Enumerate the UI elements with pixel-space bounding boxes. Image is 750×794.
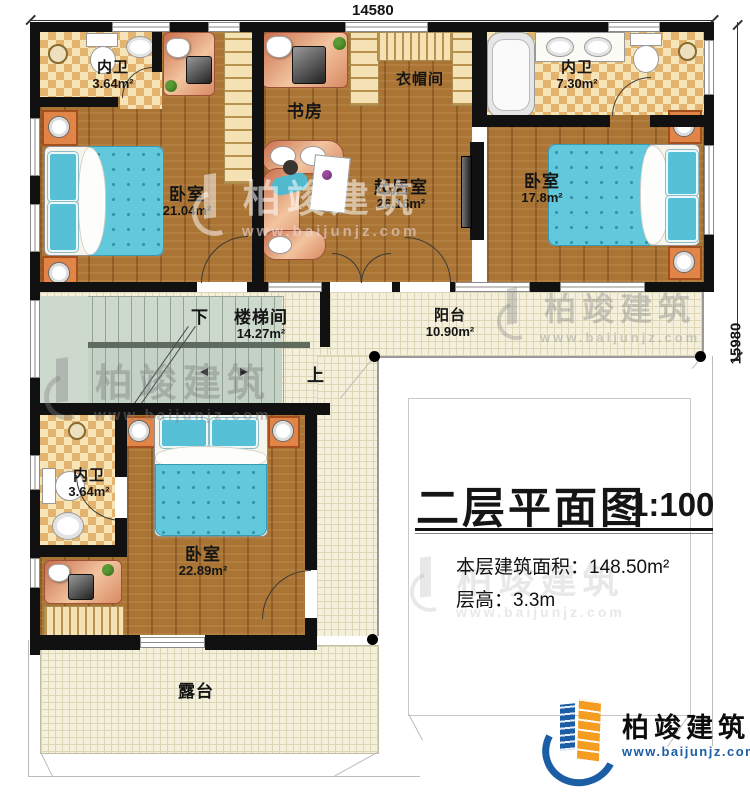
room-name: 楼梯间 [218, 308, 304, 327]
room-label-bath-top-right: 内卫 7.30m² [542, 60, 612, 91]
wall-upper-bottom [530, 282, 560, 292]
column-dot [369, 351, 380, 362]
cloakroom-rack [377, 32, 455, 61]
wall-bedroom3-bottom [30, 635, 140, 650]
room-name: 卧室 [500, 172, 584, 191]
wall-bath3-bottom [30, 545, 127, 557]
computer [292, 46, 326, 84]
window [268, 282, 322, 292]
table-lamp [128, 420, 150, 442]
desk-lamp [48, 564, 70, 582]
shower-head [48, 44, 68, 64]
wall-upper-bottom [392, 282, 400, 292]
room-area: 22.89m² [160, 564, 246, 579]
table-lamp [48, 116, 70, 138]
wall-bedroom3-bottom [205, 635, 317, 650]
bed-sheet-fold [78, 147, 106, 255]
toilet-tank [86, 33, 118, 47]
pillow [160, 418, 208, 448]
shower-head [68, 422, 86, 440]
walkway-floor [317, 356, 379, 636]
window [30, 204, 40, 252]
sink [584, 37, 612, 57]
room-area: 17.8m² [500, 191, 584, 206]
window [112, 22, 170, 32]
terrace-band-diagonal [334, 752, 377, 777]
cloakroom-closet-left [350, 32, 379, 106]
sink [126, 36, 154, 58]
pillow [666, 196, 698, 242]
room-label-stairwell: 楼梯间 14.27m² [218, 308, 304, 342]
terrace-band-diagonal [40, 752, 53, 777]
computer [68, 574, 94, 600]
magazine [309, 154, 351, 213]
logo-building-blue [560, 703, 575, 751]
wall-bedroom1-living [252, 22, 264, 282]
title-rule-shadow [415, 533, 713, 534]
room-label-terrace: 露台 [162, 682, 230, 701]
dimension-line-top [30, 20, 714, 21]
window [345, 22, 428, 32]
window [208, 22, 240, 32]
wall-upper-bottom [322, 282, 330, 292]
wall-upper-bottom [247, 282, 268, 292]
window [30, 558, 40, 588]
stair-handrail [88, 342, 310, 348]
wall-bath1-bottom [40, 97, 118, 107]
terrace-band-left [28, 640, 29, 776]
plant [165, 80, 177, 92]
desk-lamp [166, 38, 190, 58]
room-area: 26.16m² [358, 197, 444, 212]
column-dot [695, 351, 706, 362]
person-head [283, 160, 298, 175]
room-name: 内卫 [54, 468, 124, 485]
floor-height-label: 层高： [456, 590, 513, 611]
stairwell-down-label: 下 [186, 308, 214, 327]
wall-upper-bottom [30, 282, 197, 292]
room-label-balcony: 阳台 10.90m² [412, 308, 488, 339]
wall-bath3-right [115, 518, 127, 545]
room-area: 7.30m² [542, 77, 612, 92]
brand-name: 柏竣建筑 [622, 706, 750, 745]
table-lamp [673, 251, 695, 273]
room-name: 卧室 [145, 185, 229, 204]
wall-bath2-bottom [650, 115, 704, 127]
room-name: 露台 [162, 682, 230, 701]
room-label-study: 书房 [272, 102, 338, 121]
stair-direction-arrow [240, 368, 248, 376]
room-name: 内卫 [78, 60, 148, 77]
bath-top-left-threshold [120, 97, 162, 109]
sink [546, 37, 574, 57]
pillow [48, 202, 78, 252]
window [30, 455, 40, 490]
wall-bath2-bottom [487, 115, 610, 127]
room-label-living: 起居室 26.16m² [358, 178, 444, 212]
window [30, 300, 40, 378]
closet [224, 32, 254, 184]
pillow [666, 150, 698, 196]
room-name: 阳台 [412, 308, 488, 325]
floor-area-label: 本层建筑面积： [456, 557, 589, 578]
room-label-bath-top-left: 内卫 3.64m² [78, 60, 148, 91]
window [140, 637, 205, 648]
plan-scale: 1:100 [630, 486, 714, 524]
computer [186, 56, 212, 84]
room-label-cloakroom: 衣帽间 [382, 72, 458, 89]
table-lamp [48, 262, 70, 284]
window [608, 22, 660, 32]
bed-duvet [155, 464, 267, 536]
window [30, 118, 40, 176]
desk-lamp [266, 36, 292, 58]
room-area: 3.64m² [54, 485, 124, 500]
dimension-top-label: 14580 [352, 2, 394, 19]
floor-area-value: 148.50m² [589, 557, 669, 578]
wall-bedroom3-right [305, 413, 317, 570]
tv-screen [461, 156, 472, 228]
brand-logo-icon [542, 696, 620, 776]
terrace-band-bottom [28, 776, 420, 777]
room-label-bedroom-right: 卧室 17.8m² [500, 172, 584, 206]
window [704, 145, 714, 235]
room-name: 衣帽间 [382, 72, 458, 89]
room-name: 上 [302, 366, 330, 385]
title-rule [415, 528, 713, 531]
column-dot [367, 634, 378, 645]
stairwell-up-label: 上 [302, 366, 330, 385]
floor-area-line: 本层建筑面积：148.50m² [456, 552, 669, 579]
roofline-diagonal [408, 714, 423, 741]
brand-website: www.baijunjz.com [622, 744, 750, 759]
wall-cloakroom-bath [472, 22, 487, 127]
room-name: 起居室 [358, 178, 444, 197]
room-area: 21.04m² [145, 204, 229, 219]
dimension-right-label: 15980 [728, 313, 745, 375]
room-name: 内卫 [542, 60, 612, 77]
plant [102, 564, 114, 576]
stair-direction-arrow [200, 368, 208, 376]
window [560, 282, 645, 292]
room-name: 卧室 [160, 545, 246, 564]
toilet-bowl [633, 45, 659, 73]
magazine-flower [322, 170, 332, 180]
pillow [48, 152, 78, 202]
plan-title: 二层平面图 [416, 474, 646, 536]
window [704, 40, 714, 95]
floor-height-line: 层高：3.3m [456, 585, 555, 612]
window [455, 282, 530, 292]
room-label-bedroom-lower: 卧室 22.89m² [160, 545, 246, 579]
room-label-bedroom-top-left: 卧室 21.04m² [145, 185, 229, 219]
wall-stairwell-bottom [30, 403, 330, 415]
dimension-line-right [737, 22, 738, 360]
table-lamp [272, 420, 294, 442]
sofa-cushion [268, 236, 292, 254]
room-name: 下 [186, 308, 214, 327]
balcony-floor [330, 292, 704, 358]
sink [52, 512, 84, 540]
shower-head [678, 42, 697, 61]
wall-upper-bottom [645, 282, 714, 292]
logo-building-orange [577, 699, 601, 762]
room-label-bath-lower: 内卫 3.64m² [54, 468, 124, 499]
bathtub-inner [492, 39, 530, 111]
floor-plan: 14580 15980 [0, 0, 750, 794]
wall-stair-right [320, 292, 330, 347]
floor-height-value: 3.3m [513, 590, 555, 611]
room-area: 10.90m² [412, 325, 488, 340]
room-area: 3.64m² [78, 77, 148, 92]
stair-landing [40, 296, 88, 406]
room-name: 书房 [272, 102, 338, 121]
pillow [210, 418, 258, 448]
plant [333, 37, 346, 50]
roofline-right-outer [712, 356, 713, 746]
tv-partition-wall [470, 142, 484, 240]
room-area: 14.27m² [218, 327, 304, 342]
